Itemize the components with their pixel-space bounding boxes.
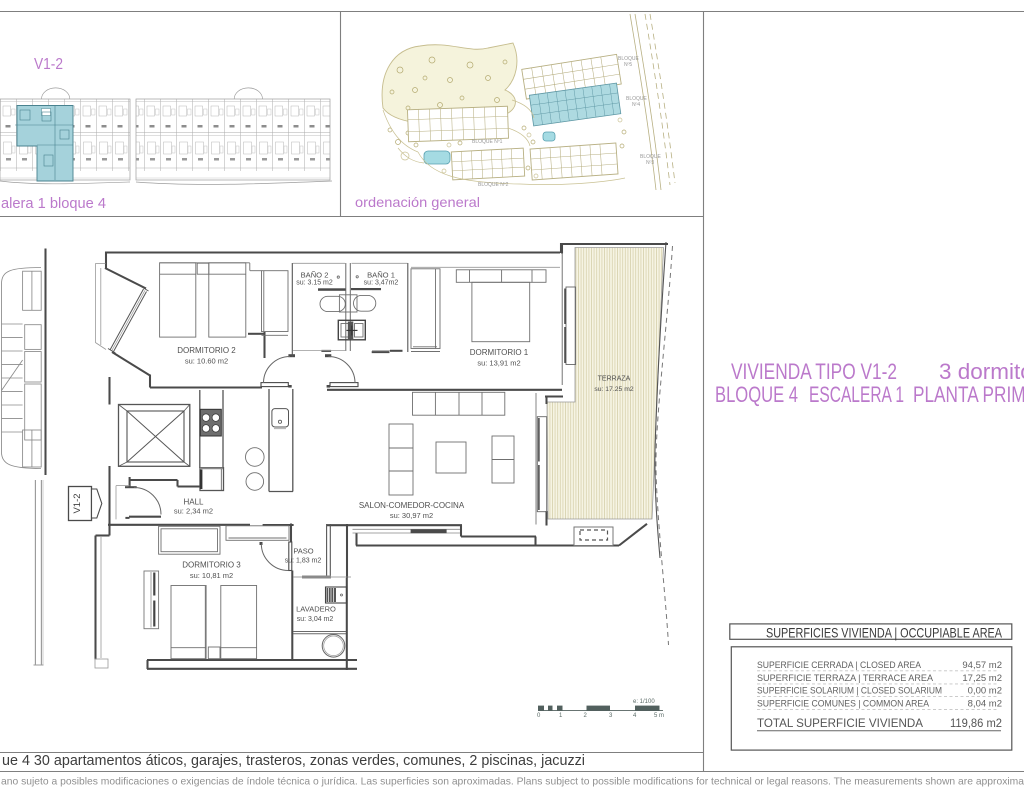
- svg-text:V1-2: V1-2: [72, 493, 83, 513]
- svg-text:ano sujeto a posibles modifica: ano sujeto a posibles modificaciones o e…: [1, 776, 1024, 788]
- svg-text:3: 3: [609, 713, 613, 719]
- svg-text:PASO: PASO: [293, 547, 313, 556]
- svg-text:ue 4 30 apartamentos áticos, g: ue 4 30 apartamentos áticos, garajes, tr…: [2, 752, 585, 769]
- svg-text:BLOQUE Nº2: BLOQUE Nº2: [478, 182, 509, 188]
- svg-text:su: 1,83 m2: su: 1,83 m2: [285, 558, 322, 565]
- svg-text:8,04 m2: 8,04 m2: [968, 698, 1002, 709]
- svg-text:SUPERFICIE SOLARIUM | CLOSED S: SUPERFICIE SOLARIUM | CLOSED SOLARIUM: [757, 686, 942, 697]
- svg-text:su: 30,97 m2: su: 30,97 m2: [390, 511, 433, 520]
- svg-text:su: 2,34 m2: su: 2,34 m2: [174, 507, 213, 516]
- svg-text:su: 10.60 m2: su: 10.60 m2: [185, 357, 228, 366]
- svg-text:SALON-COMEDOR-COCINA: SALON-COMEDOR-COCINA: [359, 501, 465, 510]
- svg-text:BLOQUE Nº1: BLOQUE Nº1: [472, 139, 503, 145]
- svg-text:LAVADERO: LAVADERO: [296, 605, 336, 614]
- svg-text:BLOQUE 4: BLOQUE 4: [715, 382, 798, 407]
- svg-text:119,86 m2: 119,86 m2: [950, 716, 1002, 730]
- svg-text:0,00 m2: 0,00 m2: [968, 686, 1002, 697]
- svg-text:su: 3,04 m2: su: 3,04 m2: [297, 616, 334, 623]
- svg-text:TOTAL SUPERFICIE VIVIENDA: TOTAL SUPERFICIE VIVIENDA: [757, 716, 923, 730]
- svg-text:ordenación general: ordenación general: [355, 194, 480, 210]
- svg-text:alera 1 bloque 4: alera 1 bloque 4: [1, 195, 106, 212]
- svg-text:TERRAZA: TERRAZA: [598, 376, 631, 383]
- svg-text:2: 2: [584, 713, 588, 719]
- svg-text:1: 1: [559, 713, 563, 719]
- svg-text:5 m: 5 m: [654, 713, 664, 719]
- svg-text:e: 1/100: e: 1/100: [633, 699, 655, 705]
- svg-text:su: 3,47m2: su: 3,47m2: [364, 280, 399, 287]
- svg-text:17,25 m2: 17,25 m2: [962, 673, 1002, 684]
- svg-text:SUPERFICIE CERRADA | CLOSED AR: SUPERFICIE CERRADA | CLOSED AREA: [757, 660, 922, 671]
- svg-text:su: 3.15 m2: su: 3.15 m2: [296, 280, 333, 287]
- svg-text:DORMITORIO 3: DORMITORIO 3: [182, 561, 241, 570]
- svg-text:SUPERFICIES VIVIENDA | OCCUPIA: SUPERFICIES VIVIENDA | OCCUPIABLE AREA: [766, 626, 1003, 641]
- svg-text:4: 4: [633, 713, 637, 719]
- svg-text:Nº5: Nº5: [624, 62, 632, 68]
- svg-text:SUPERFICIE COMUNES | COMMON AR: SUPERFICIE COMUNES | COMMON AREA: [757, 698, 930, 709]
- svg-text:su: 10,81 m2: su: 10,81 m2: [190, 571, 233, 580]
- svg-text:ESCALERA 1: ESCALERA 1: [809, 382, 904, 407]
- svg-text:3 dormitorios: 3 dormitorios: [939, 359, 1024, 384]
- svg-text:V1-2: V1-2: [34, 56, 63, 73]
- svg-text:Nº4: Nº4: [632, 102, 640, 108]
- svg-text:SUPERFICIE TERRAZA | TERRACE: SUPERFICIE TERRAZA | TERRACE AREA: [757, 673, 934, 684]
- svg-text:BAÑO 2: BAÑO 2: [301, 271, 329, 280]
- svg-text:PLANTA PRIMERA: PLANTA PRIMERA: [913, 382, 1024, 407]
- svg-text:HALL: HALL: [183, 498, 204, 507]
- svg-text:su: 13,91 m2: su: 13,91 m2: [477, 359, 520, 368]
- svg-text:DORMITORIO 1: DORMITORIO 1: [470, 348, 529, 357]
- svg-text:0: 0: [537, 713, 541, 719]
- svg-text:94,57 m2: 94,57 m2: [962, 660, 1002, 671]
- svg-text:BAÑO 1: BAÑO 1: [367, 271, 395, 280]
- svg-text:DORMITORIO 2: DORMITORIO 2: [177, 346, 236, 355]
- svg-text:Nº3: Nº3: [646, 160, 654, 166]
- svg-text:VIVIENDA TIPO V1-2: VIVIENDA TIPO V1-2: [731, 359, 897, 384]
- svg-text:su: 17.25 m2: su: 17.25 m2: [594, 386, 634, 393]
